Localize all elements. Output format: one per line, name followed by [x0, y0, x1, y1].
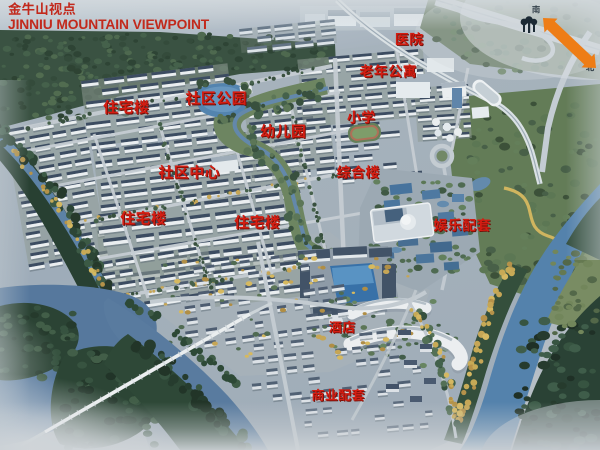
svg-text:JINNIU MOUNTAIN VIEWPOINT: JINNIU MOUNTAIN VIEWPOINT — [8, 17, 210, 32]
